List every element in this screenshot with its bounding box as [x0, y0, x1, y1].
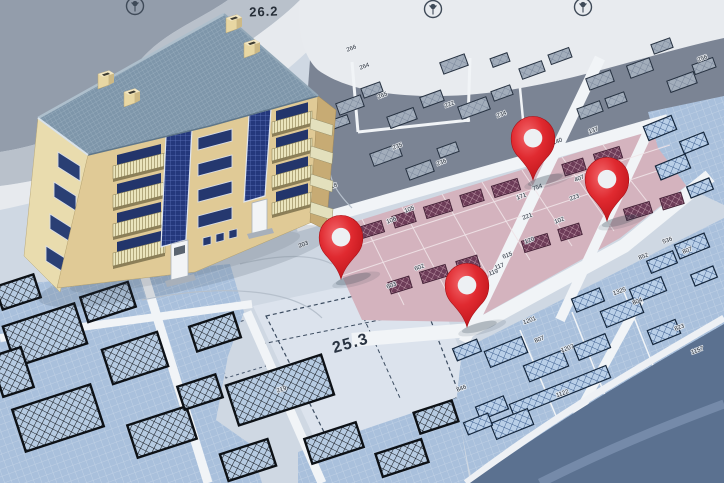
- map-scene: 2662642652222342352362182152031081051062…: [0, 0, 724, 483]
- pin-hole: [524, 129, 543, 148]
- entrance-door-1: [171, 240, 188, 281]
- small-window: [216, 232, 224, 242]
- pin-hole: [598, 170, 617, 189]
- cadastral-map: 2662642652222342352362182152031081051062…: [0, 0, 724, 483]
- small-window: [203, 236, 211, 246]
- small-window: [229, 229, 237, 239]
- elevation-label-26-2: 26.2: [249, 3, 279, 19]
- pin-hole: [332, 228, 351, 247]
- entrance-door-2: [252, 199, 267, 234]
- pin-hole: [458, 276, 477, 295]
